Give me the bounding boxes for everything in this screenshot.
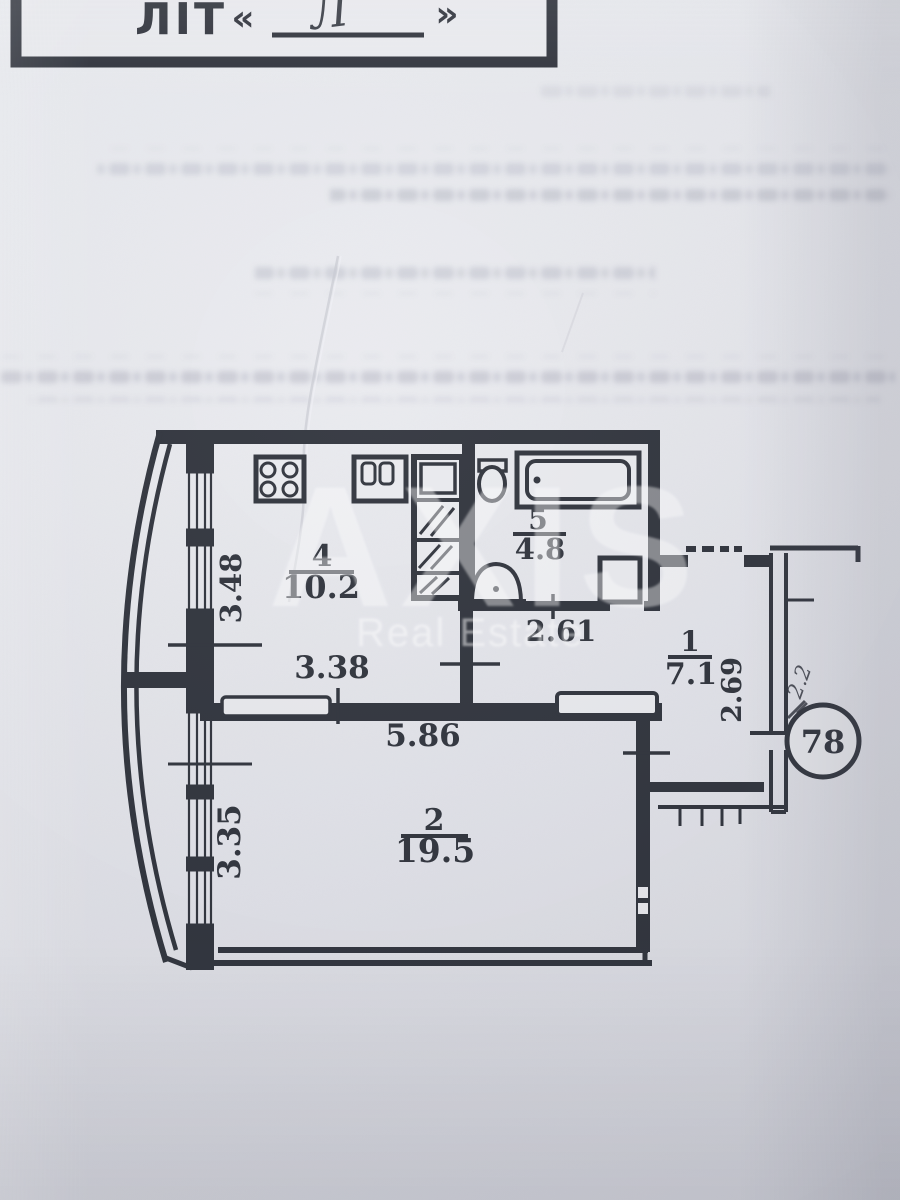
balcony-divider [126,672,214,688]
dim-kitchen-wall: 3.48 [214,553,248,624]
living-right-wall [636,720,650,952]
close-quote: » [435,0,458,35]
door-sill-kitchen [222,697,330,716]
apartment-number: 78 [801,723,846,761]
dim-living-width: 5.86 [385,718,461,754]
wall-niche [638,887,648,898]
dim-kitchen-width: 3.38 [294,650,370,686]
lit-label: ЛІТ [135,0,227,45]
room-area: 19.5 [395,831,475,870]
room-area: 7.1 [665,657,717,692]
wall-niche [638,903,648,914]
top-wall [156,430,660,444]
dim-hall-wall: 2.69 [717,657,748,723]
scanned-floor-plan-photo: ЛІТ « Л » [0,0,900,1200]
apartment-number-circle: 78 [787,705,859,777]
watermark-subtitle: Real Estate [356,611,585,655]
stamp-box-border [16,0,552,62]
open-quote: « [231,0,254,39]
watermark: AXIS Real Estate [268,451,701,655]
dim-living-wall: 3.35 [212,804,248,880]
door-sill-living [557,693,657,715]
handwritten-letter: Л [305,0,353,41]
hall-bottom-wall [636,782,764,792]
lit-stamp-box: ЛІТ « Л » [16,0,552,62]
floor-plan-drawing: ЛІТ « Л » [0,0,900,1200]
